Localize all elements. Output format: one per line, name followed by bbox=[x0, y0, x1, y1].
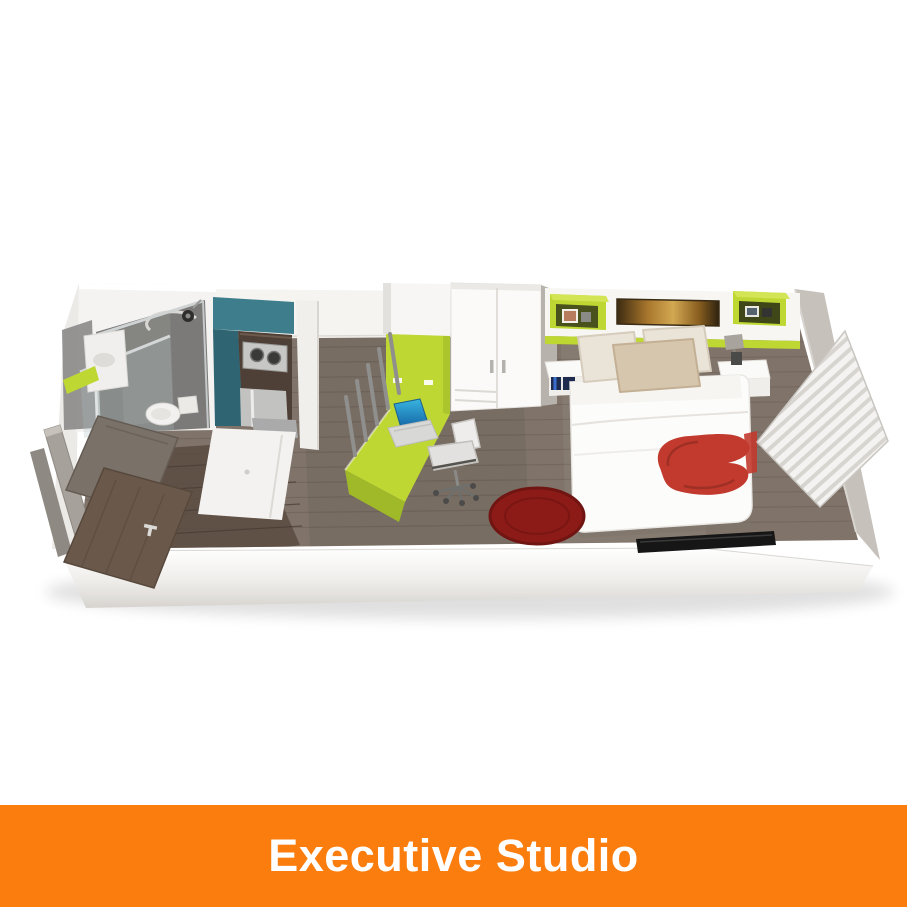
pillow-accent bbox=[613, 339, 700, 392]
title-banner: Executive Studio bbox=[0, 805, 907, 907]
kitchen-hob bbox=[243, 342, 287, 372]
wardrobe bbox=[451, 283, 557, 411]
bathroom bbox=[62, 283, 216, 438]
banner-title: Executive Studio bbox=[268, 830, 639, 882]
kitchen-unit-front bbox=[198, 428, 296, 520]
page: Executive Studio bbox=[0, 0, 907, 907]
desk-column bbox=[383, 283, 450, 336]
kitchen-splashback bbox=[213, 297, 294, 334]
wardrobe-handle bbox=[502, 360, 506, 373]
floorplan-render bbox=[0, 0, 907, 700]
shelf-cubby-right bbox=[733, 291, 790, 326]
wardrobe-handle bbox=[490, 360, 494, 373]
shelf-cubby-left bbox=[550, 294, 609, 330]
wall-artwork bbox=[617, 299, 719, 326]
red-rug bbox=[490, 488, 584, 544]
